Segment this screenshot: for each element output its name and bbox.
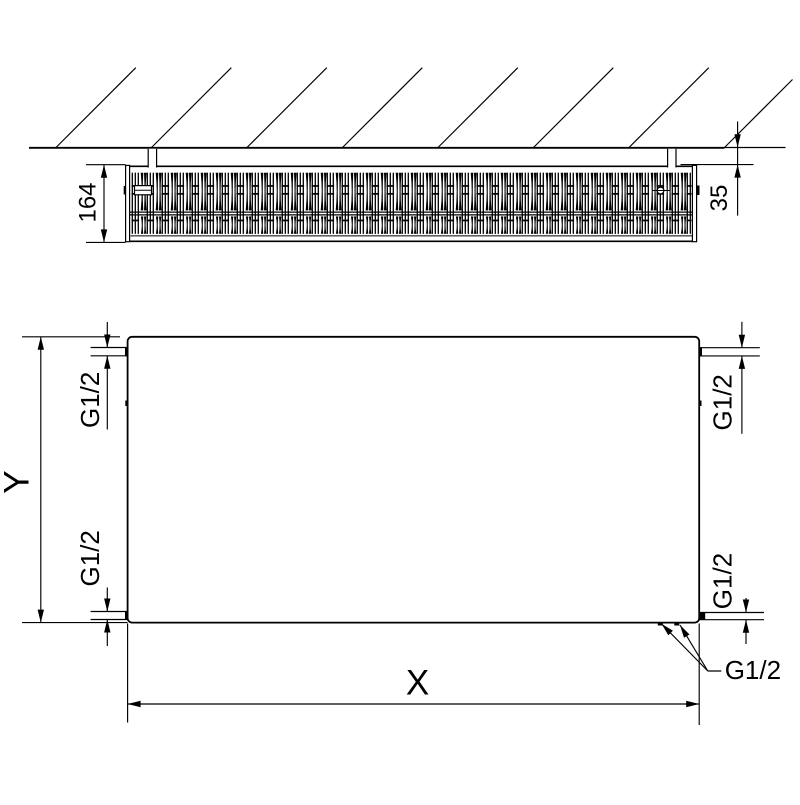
svg-text:G1/2: G1/2 (708, 374, 738, 430)
svg-text:G1/2: G1/2 (708, 553, 738, 609)
svg-text:G1/2: G1/2 (725, 655, 781, 685)
svg-text:164: 164 (75, 182, 102, 222)
svg-text:X: X (406, 664, 429, 703)
svg-text:G1/2: G1/2 (75, 372, 105, 428)
svg-text:G1/2: G1/2 (75, 530, 105, 586)
svg-text:Y: Y (0, 470, 37, 493)
svg-text:35: 35 (706, 185, 733, 212)
